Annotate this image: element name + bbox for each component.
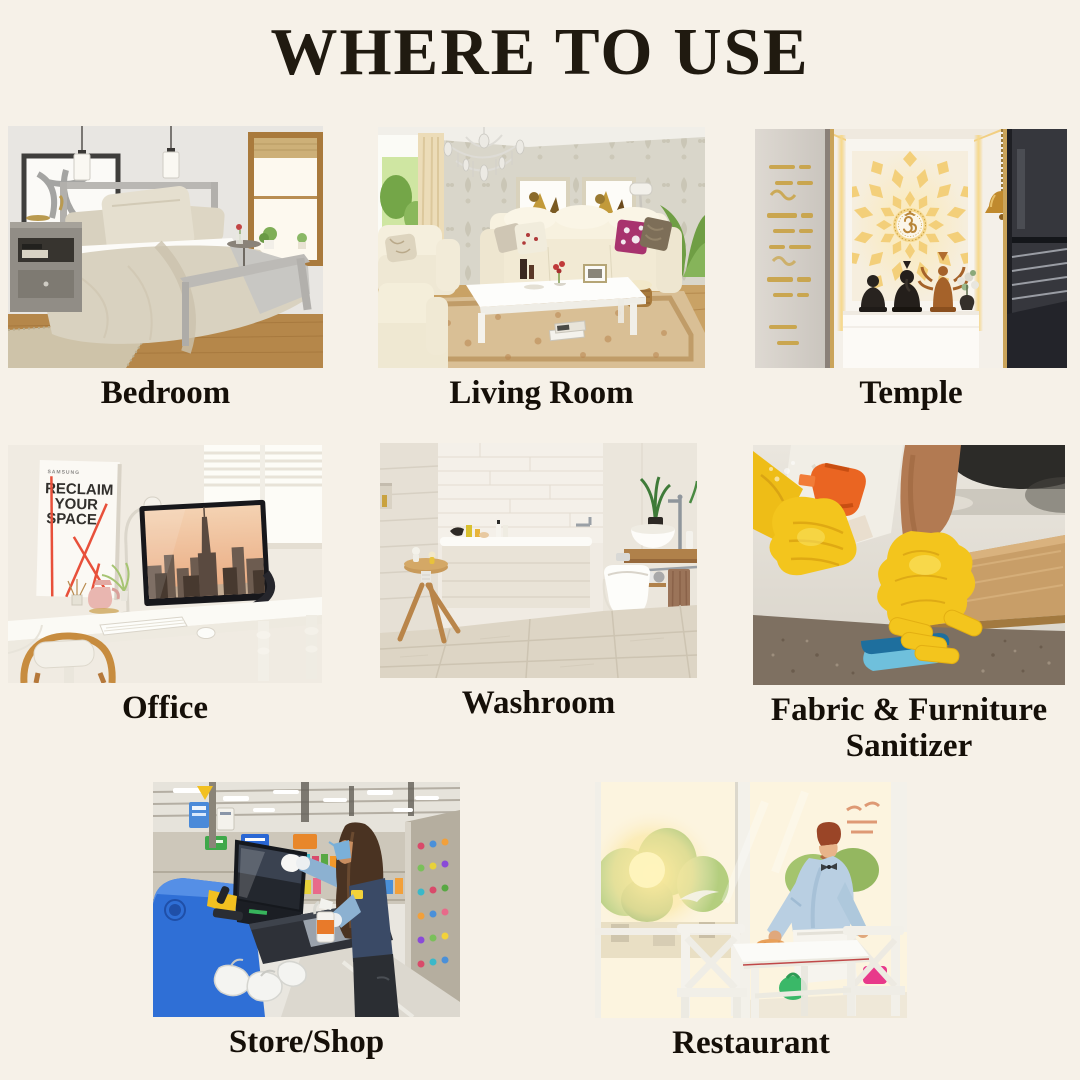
living-room-card: Living Room bbox=[378, 127, 705, 412]
store-photo bbox=[153, 782, 460, 1017]
bedroom-label: Bedroom bbox=[8, 376, 323, 412]
store-card: Store/Shop bbox=[153, 782, 460, 1061]
washroom-label: Washroom bbox=[380, 686, 697, 722]
restaurant-label: Restaurant bbox=[595, 1026, 907, 1062]
temple-label: Temple bbox=[755, 376, 1067, 412]
fabric-sanitizer-photo bbox=[753, 445, 1065, 685]
office-label: Office bbox=[8, 691, 322, 727]
restaurant-card: Restaurant bbox=[595, 782, 907, 1062]
washroom-photo bbox=[380, 443, 697, 678]
washroom-card: Washroom bbox=[380, 443, 697, 722]
fabric-sanitizer-card: Fabric & Furniture Sanitizer bbox=[753, 445, 1065, 764]
page-title: WHERE TO USE bbox=[0, 14, 1080, 91]
living-room-label: Living Room bbox=[378, 376, 705, 412]
office-photo: SAMSUNG RECLAIM YOUR SPACE bbox=[8, 445, 322, 683]
bedroom-card: Bedroom bbox=[8, 126, 323, 412]
store-label: Store/Shop bbox=[153, 1025, 460, 1061]
temple-photo bbox=[755, 129, 1067, 368]
temple-card: Temple bbox=[755, 129, 1067, 412]
svg-text:SPACE: SPACE bbox=[46, 510, 97, 528]
svg-text:SAMSUNG: SAMSUNG bbox=[47, 469, 80, 476]
living-room-photo bbox=[378, 127, 705, 368]
restaurant-photo bbox=[595, 782, 907, 1018]
bedroom-photo bbox=[8, 126, 323, 368]
fabric-sanitizer-label: Fabric & Furniture Sanitizer bbox=[735, 693, 1080, 764]
office-card: SAMSUNG RECLAIM YOUR SPACE bbox=[8, 445, 322, 727]
